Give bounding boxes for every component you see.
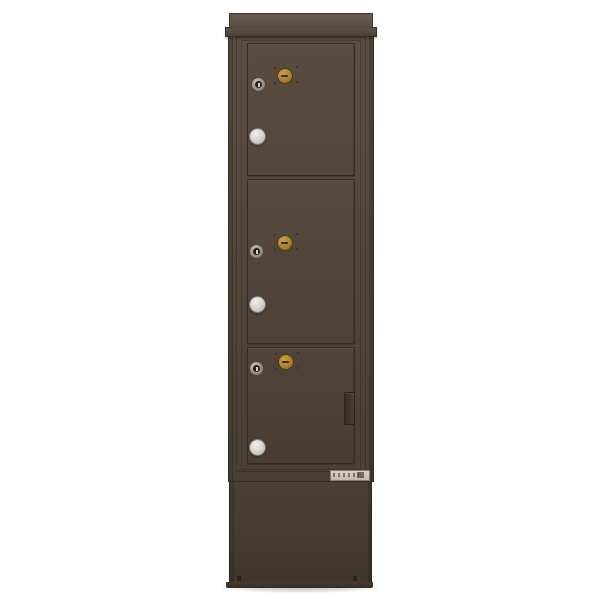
- door-pull-handle: [344, 392, 355, 425]
- base-feet-marks: [237, 576, 241, 581]
- pull-knob-top: [249, 128, 266, 145]
- base-foot-plate: [226, 582, 373, 588]
- arrow-lock-icon-middle: [277, 235, 293, 251]
- keyhole-lock-icon-middle: [249, 244, 264, 259]
- keyhole-lock-icon-bottom: [249, 361, 264, 376]
- parcel-door-top: [247, 43, 355, 176]
- arrow-lock-icon-bottom: [278, 354, 294, 370]
- arrow-lock-icon-top: [277, 68, 293, 84]
- keyhole-lock-icon-top: [251, 77, 266, 92]
- pedestal-base: [229, 479, 372, 585]
- pull-knob-middle: [249, 296, 266, 313]
- product-scene: [0, 0, 600, 600]
- compliance-label: [330, 470, 370, 481]
- crown-cap: [229, 13, 373, 29]
- pull-knob-bottom: [249, 439, 266, 456]
- parcel-door-middle: [247, 179, 355, 344]
